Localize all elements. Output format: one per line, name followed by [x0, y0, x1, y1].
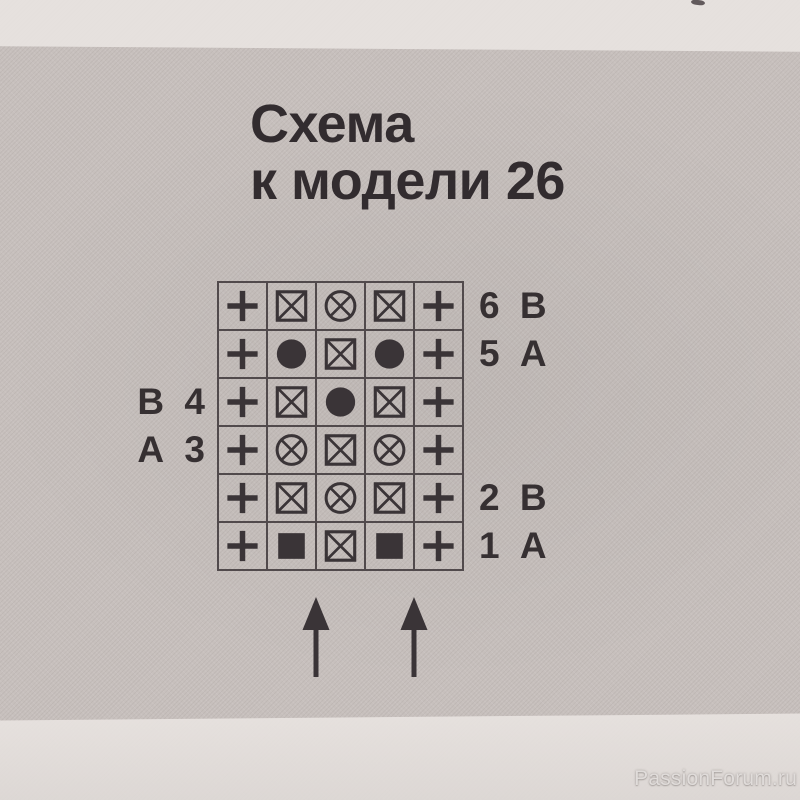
plus-icon	[416, 284, 461, 328]
chart-cell	[414, 330, 463, 378]
boxed-x-icon	[318, 332, 363, 376]
circled-x-icon	[318, 476, 363, 520]
chart-cell	[365, 378, 414, 426]
chart-cell	[316, 378, 365, 426]
plus-icon	[220, 284, 265, 328]
row-label-left: В 4	[137, 377, 205, 425]
chart-cell	[267, 474, 316, 522]
chart-cell	[414, 474, 463, 522]
chart-cell	[267, 330, 316, 378]
chart-cell	[316, 426, 365, 474]
chart-cell	[218, 426, 267, 474]
circled-x-icon	[367, 428, 412, 472]
plus-icon	[220, 380, 265, 424]
plus-icon	[416, 428, 461, 472]
row-label-left: А 3	[137, 425, 205, 473]
boxed-x-icon	[367, 476, 412, 520]
dot-icon	[367, 332, 412, 376]
chart-cell	[267, 378, 316, 426]
boxed-x-icon	[318, 524, 363, 568]
circled-x-icon	[269, 428, 314, 472]
dot-icon	[318, 380, 363, 424]
chart-cell	[365, 426, 414, 474]
chart-cell	[218, 282, 267, 330]
up-arrow-icon	[301, 597, 331, 677]
boxed-x-icon	[367, 284, 412, 328]
plus-icon	[220, 332, 265, 376]
dot-icon	[269, 332, 314, 376]
chart-title-line-2: к модели 26	[250, 153, 565, 210]
chart-cell	[414, 282, 463, 330]
chart-cell	[316, 282, 365, 330]
circled-x-icon	[318, 284, 363, 328]
chart-cell	[218, 330, 267, 378]
repeat-arrows	[217, 597, 464, 677]
paper-highlight-top	[0, 0, 800, 52]
row-label-right: 5 А	[479, 329, 547, 377]
chart-cell	[218, 522, 267, 570]
chart-grid	[217, 281, 464, 571]
chart-cell	[414, 426, 463, 474]
chart-cell	[218, 474, 267, 522]
magazine-page: Схема к модели 26 6 В5 АВ 4А 32 В1 А Pas…	[0, 0, 800, 800]
boxed-x-icon	[269, 380, 314, 424]
boxed-x-icon	[318, 428, 363, 472]
chart-title: Схема к модели 26	[250, 96, 565, 210]
chart-cell	[365, 474, 414, 522]
plus-icon	[416, 380, 461, 424]
row-label-right: 1 А	[479, 521, 547, 569]
boxed-x-icon	[367, 380, 412, 424]
boxed-x-icon	[269, 284, 314, 328]
chart-cell	[414, 378, 463, 426]
filled-square-icon	[367, 524, 412, 568]
chart-cell	[267, 282, 316, 330]
chart-cell	[316, 474, 365, 522]
row-label-right: 6 В	[479, 281, 547, 329]
plus-icon	[416, 524, 461, 568]
plus-icon	[416, 476, 461, 520]
chart-cell	[218, 378, 267, 426]
chart-cell	[414, 522, 463, 570]
plus-icon	[416, 332, 461, 376]
chart-cell	[316, 522, 365, 570]
chart-cell	[267, 426, 316, 474]
plus-icon	[220, 524, 265, 568]
row-label-right: 2 В	[479, 473, 547, 521]
chart-cell	[365, 282, 414, 330]
chart-cell	[365, 522, 414, 570]
plus-icon	[220, 428, 265, 472]
chart-cell	[267, 522, 316, 570]
chart-cell	[365, 330, 414, 378]
chart-title-line-1: Схема	[250, 96, 565, 153]
watermark: PassionForum.ru	[634, 767, 797, 791]
boxed-x-icon	[269, 476, 314, 520]
chart-area: 6 В5 АВ 4А 32 В1 А	[217, 281, 464, 571]
filled-square-icon	[269, 524, 314, 568]
plus-icon	[220, 476, 265, 520]
chart-cell	[316, 330, 365, 378]
up-arrow-icon	[399, 597, 429, 677]
